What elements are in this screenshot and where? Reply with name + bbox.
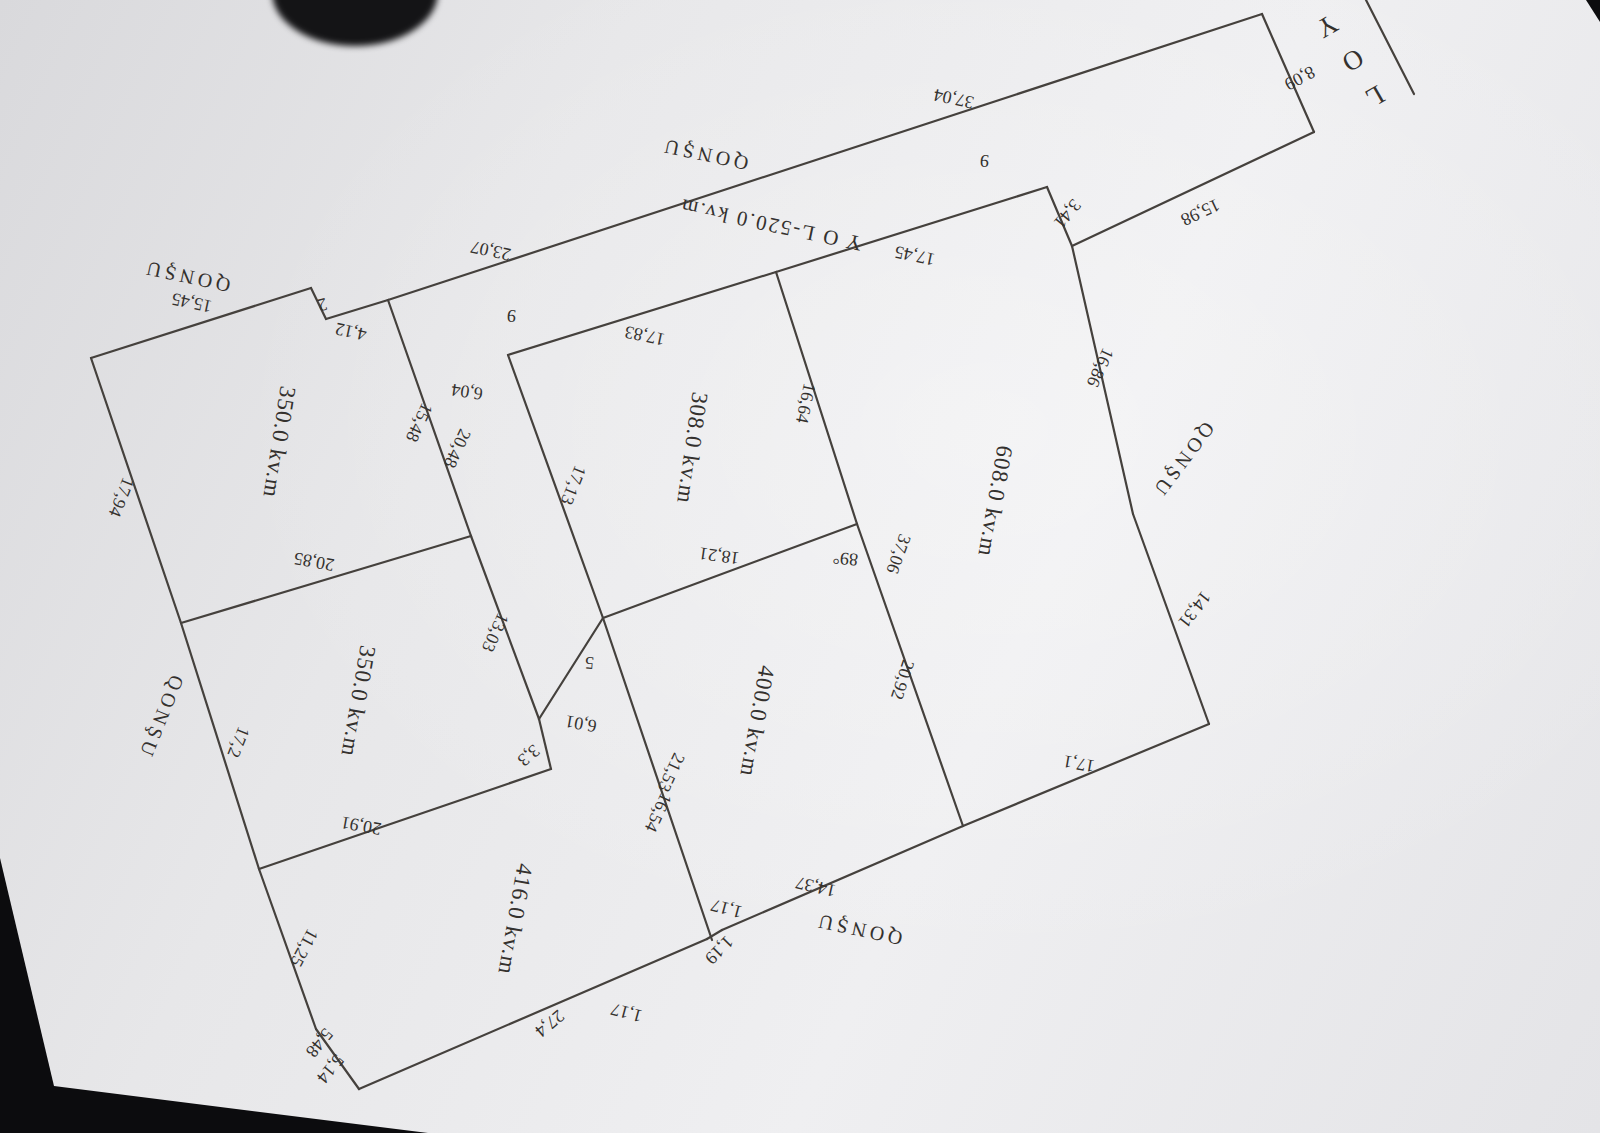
area-label: 350.0 kv.m <box>258 385 300 500</box>
dimension-label: 8,09 <box>1281 62 1318 94</box>
dimension-label: 6,01 <box>564 711 598 736</box>
dimension-label: 17,13 <box>557 463 591 508</box>
dimension-label: 5 <box>584 653 595 674</box>
dimension-label: 16,54 <box>641 790 676 835</box>
dimension-label: 1,19 <box>701 932 737 968</box>
boundary-line <box>1072 132 1314 246</box>
photo-of-survey-plan: YOL8,0915,983,4137,0423,07QONŞUQONŞU15,4… <box>0 0 1600 1133</box>
dimension-label: 17,94 <box>105 475 139 520</box>
dimension-label: 16,86 <box>1083 345 1118 390</box>
area-label: 608.0 kv.m <box>973 444 1017 559</box>
neighbor-label: QONŞU <box>1147 417 1219 502</box>
dimension-label: 21,53 <box>654 750 689 795</box>
dimension-label: 9 <box>979 151 990 172</box>
road-name-letter: O <box>1332 42 1369 81</box>
dimension-label: 37,06 <box>882 532 915 577</box>
dimension-label: 18,21 <box>698 543 741 568</box>
dimension-label: 17,1 <box>1062 751 1096 776</box>
boundary-line <box>603 524 857 618</box>
neighbor-label: QONŞU <box>659 134 751 175</box>
boundary-line <box>722 826 963 930</box>
neighbor-label: QONŞU <box>141 256 233 297</box>
area-label: 400.0 kv.m <box>735 664 779 779</box>
dimension-label: 14,31 <box>1174 588 1215 632</box>
dimension-label: 17,45 <box>893 242 937 270</box>
boundary-line <box>259 769 551 869</box>
dimension-label: 23,07 <box>469 237 513 265</box>
dimension-label: 20,91 <box>339 813 382 840</box>
dimension-label: 3,41 <box>1050 195 1086 232</box>
dimension-label: 1,17 <box>609 999 645 1026</box>
dimension-label: 16,64 <box>792 381 820 425</box>
dimension-label: 17,83 <box>623 322 667 350</box>
plan-labels: YOL8,0915,983,4137,0423,07QONŞUQONŞU15,4… <box>105 8 1390 1087</box>
area-label: 416.0 kv.m <box>493 862 537 977</box>
dimension-label: 20,85 <box>292 549 335 576</box>
road-name-letter: Y <box>1306 8 1343 47</box>
dimension-label: 3,3 <box>514 741 544 771</box>
neighbor-label: QONŞU <box>813 909 905 950</box>
dimension-label: 15,98 <box>1178 195 1223 230</box>
dimension-label: 17,2 <box>223 724 253 761</box>
dimension-label: 6,04 <box>450 380 484 404</box>
dimension-label: 37,04 <box>932 85 976 113</box>
area-label: 350.0 kv.m <box>336 644 380 759</box>
road-strip-label: Y O L-520.0 kv.m <box>677 194 864 256</box>
neighbor-label: QONŞU <box>134 672 189 763</box>
dimension-label: 20,48 <box>440 426 475 471</box>
road-name-letter: L <box>1355 79 1389 116</box>
dimension-label: 11,25 <box>286 926 322 971</box>
boundary-line <box>1366 0 1414 94</box>
dimension-label: 9 <box>506 306 517 327</box>
dimension-label: 4,12 <box>333 319 368 345</box>
cadastral-plan-drawing: YOL8,0915,983,4137,0423,07QONŞUQONŞU15,4… <box>0 0 1600 1133</box>
dimension-label: 89° <box>832 548 859 570</box>
dimension-label: 20,92 <box>887 658 919 703</box>
dimension-label: 1,17 <box>709 895 745 922</box>
boundary-line <box>359 939 707 1089</box>
dimension-label: 2 <box>316 294 330 316</box>
boundary-line <box>326 300 388 319</box>
boundary-line <box>508 355 603 618</box>
area-label: 308.0 kv.m <box>672 391 712 506</box>
boundary-line <box>181 536 471 623</box>
boundary-line <box>539 719 551 769</box>
parcel-boundary-lines <box>91 0 1414 1089</box>
